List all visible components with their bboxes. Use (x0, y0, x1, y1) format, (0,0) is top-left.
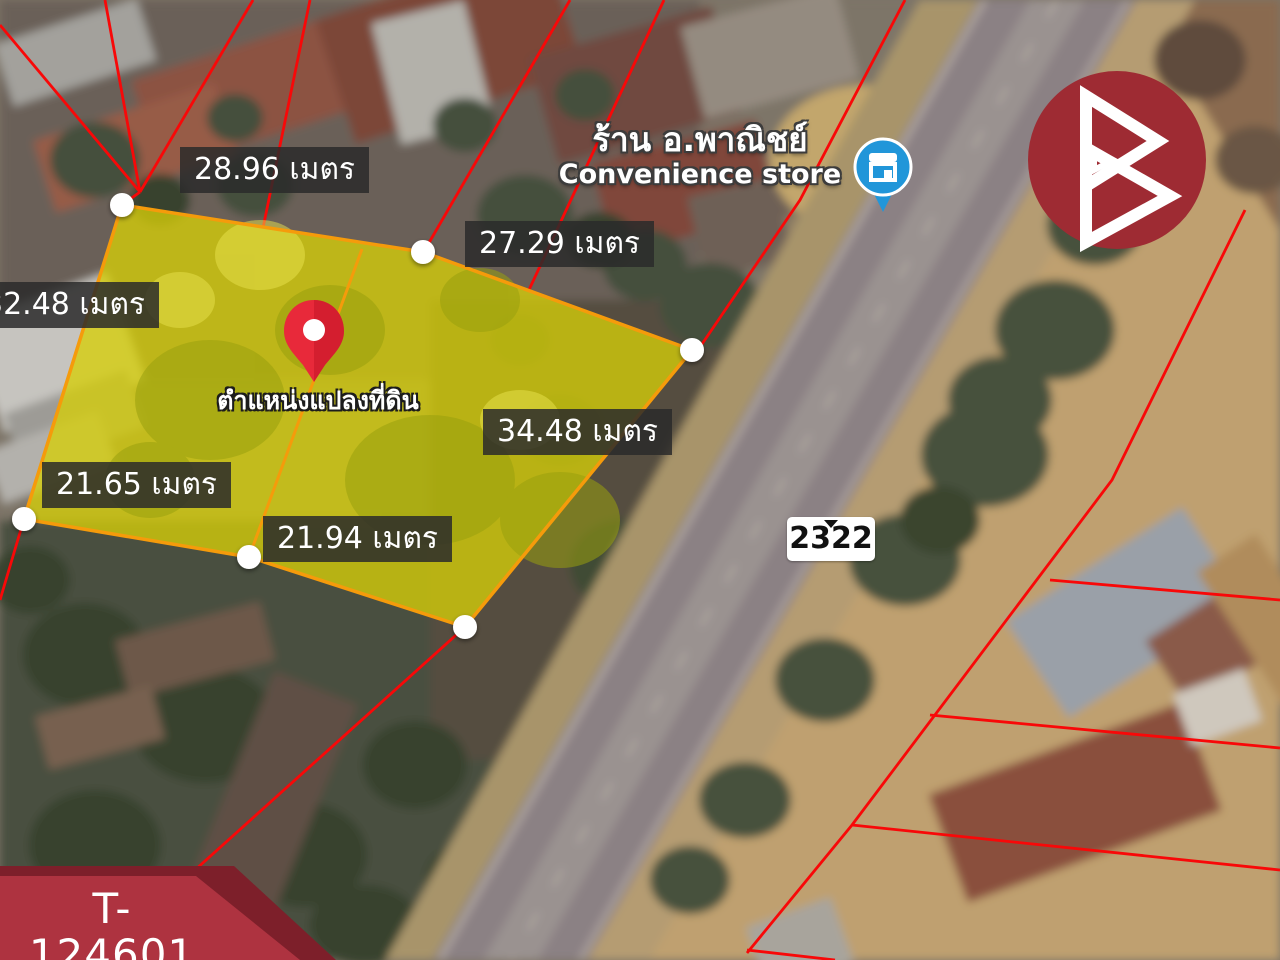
listing-code: T-124601 (14, 886, 210, 960)
store-icon (855, 139, 911, 212)
measurement-label-top-left: 28.96 เมตร (180, 147, 369, 193)
plot-marker-label: ตำแหน่งแปลงที่ดิน (198, 386, 438, 416)
store-name-thai: ร้าน อ.พาณิชย์ (545, 120, 855, 160)
measurement-label-top-right: 27.29 เมตร (465, 221, 654, 267)
measurement-label-bottom-left: 21.65 เมตร (42, 462, 231, 508)
measurement-label-bottom-middle: 21.94 เมตร (263, 516, 452, 562)
listing-code-block: T-124601 รหัสทรัพย์ (14, 886, 210, 960)
store-poi-label: ร้าน อ.พาณิชย์ Convenience store (545, 120, 855, 190)
measurement-label-left: 32.48 เมตร (0, 282, 159, 328)
land-plot-map-image: 28.96 เมตร 27.29 เมตร 32.48 เมตร 34.48 เ… (0, 0, 1280, 960)
route-shield-2322: 2322 (787, 517, 875, 561)
measurement-label-right: 34.48 เมตร (483, 409, 672, 455)
store-name-english: Convenience store (545, 160, 855, 190)
brand-logo (1028, 71, 1206, 249)
